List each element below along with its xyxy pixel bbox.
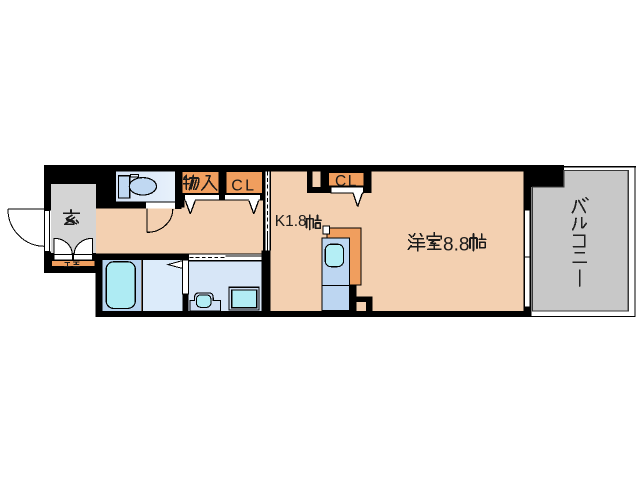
svg-text:CL: CL — [231, 177, 256, 194]
svg-text:K1.8: K1.8 — [275, 213, 307, 230]
svg-text:CL: CL — [335, 173, 358, 190]
svg-text:8.8: 8.8 — [443, 234, 469, 255]
